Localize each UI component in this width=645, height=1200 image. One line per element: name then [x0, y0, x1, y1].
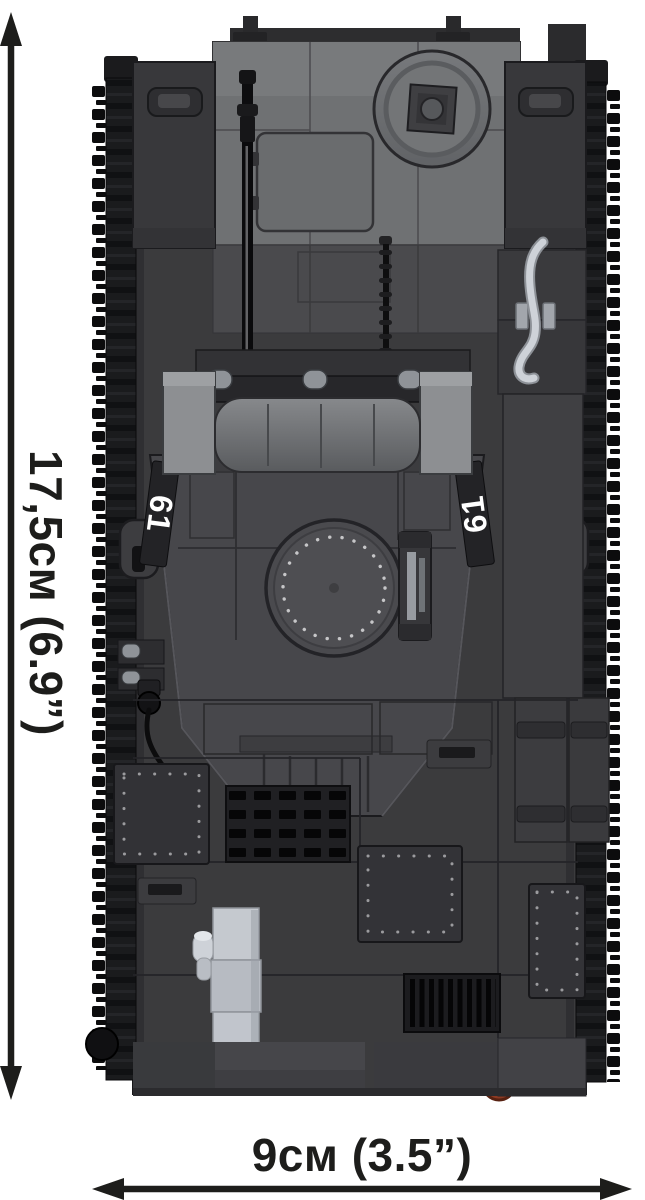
- tow-bracket-left: [138, 878, 196, 904]
- mantlet-roller: [215, 398, 420, 472]
- turret-marking-left: 61: [140, 493, 181, 535]
- height-dimension: 17,5см (6.9”): [0, 12, 72, 1100]
- fender-box-right: [505, 62, 586, 248]
- turret-hatch: [266, 520, 402, 656]
- left-track-teeth: [92, 84, 106, 1070]
- width-arrowhead-left-icon: [92, 1178, 124, 1200]
- hatch-hinge: [399, 532, 431, 640]
- turret-bustle-band: [240, 736, 392, 752]
- gun-mantlet: [163, 350, 472, 474]
- rivet-panel-center: [358, 846, 462, 942]
- rear-hull-steps: [133, 1038, 586, 1096]
- tank-top-view-figure: 61 61: [0, 0, 645, 1200]
- tow-bracket-right: [427, 740, 491, 768]
- engine-grille-horizontal: [226, 786, 350, 862]
- width-arrowhead-right-icon: [600, 1178, 632, 1200]
- width-dimension: 9см (3.5”): [92, 1129, 632, 1200]
- front-deck-lower-band: [213, 245, 520, 333]
- cupola-hatch: [374, 51, 490, 167]
- product-dimension-diagram: 61 61: [0, 0, 645, 1200]
- left-drive-sprocket: [86, 1028, 118, 1060]
- cupola-stud: [421, 98, 443, 120]
- rivet-panel-right: [529, 884, 585, 998]
- turret-marking-right: 61: [454, 493, 495, 535]
- height-arrowhead-down-icon: [0, 1066, 22, 1100]
- mantlet-post-right: [420, 372, 472, 474]
- height-arrowhead-up-icon: [0, 12, 22, 46]
- right-track-teeth: [606, 88, 620, 1082]
- tank-model: 61 61: [86, 16, 620, 1100]
- height-dimension-label: 17,5см (6.9”): [20, 450, 72, 736]
- mantlet-post-left: [163, 372, 215, 474]
- right-fender-long-panel: [503, 394, 583, 698]
- engine-grille-vertical: [404, 974, 500, 1032]
- fender-box-left: [133, 62, 215, 248]
- driver-hatch: [257, 133, 373, 231]
- width-dimension-label: 9см (3.5”): [252, 1129, 473, 1181]
- antenna-rod: [379, 236, 392, 356]
- rivet-panel-left: [114, 764, 209, 864]
